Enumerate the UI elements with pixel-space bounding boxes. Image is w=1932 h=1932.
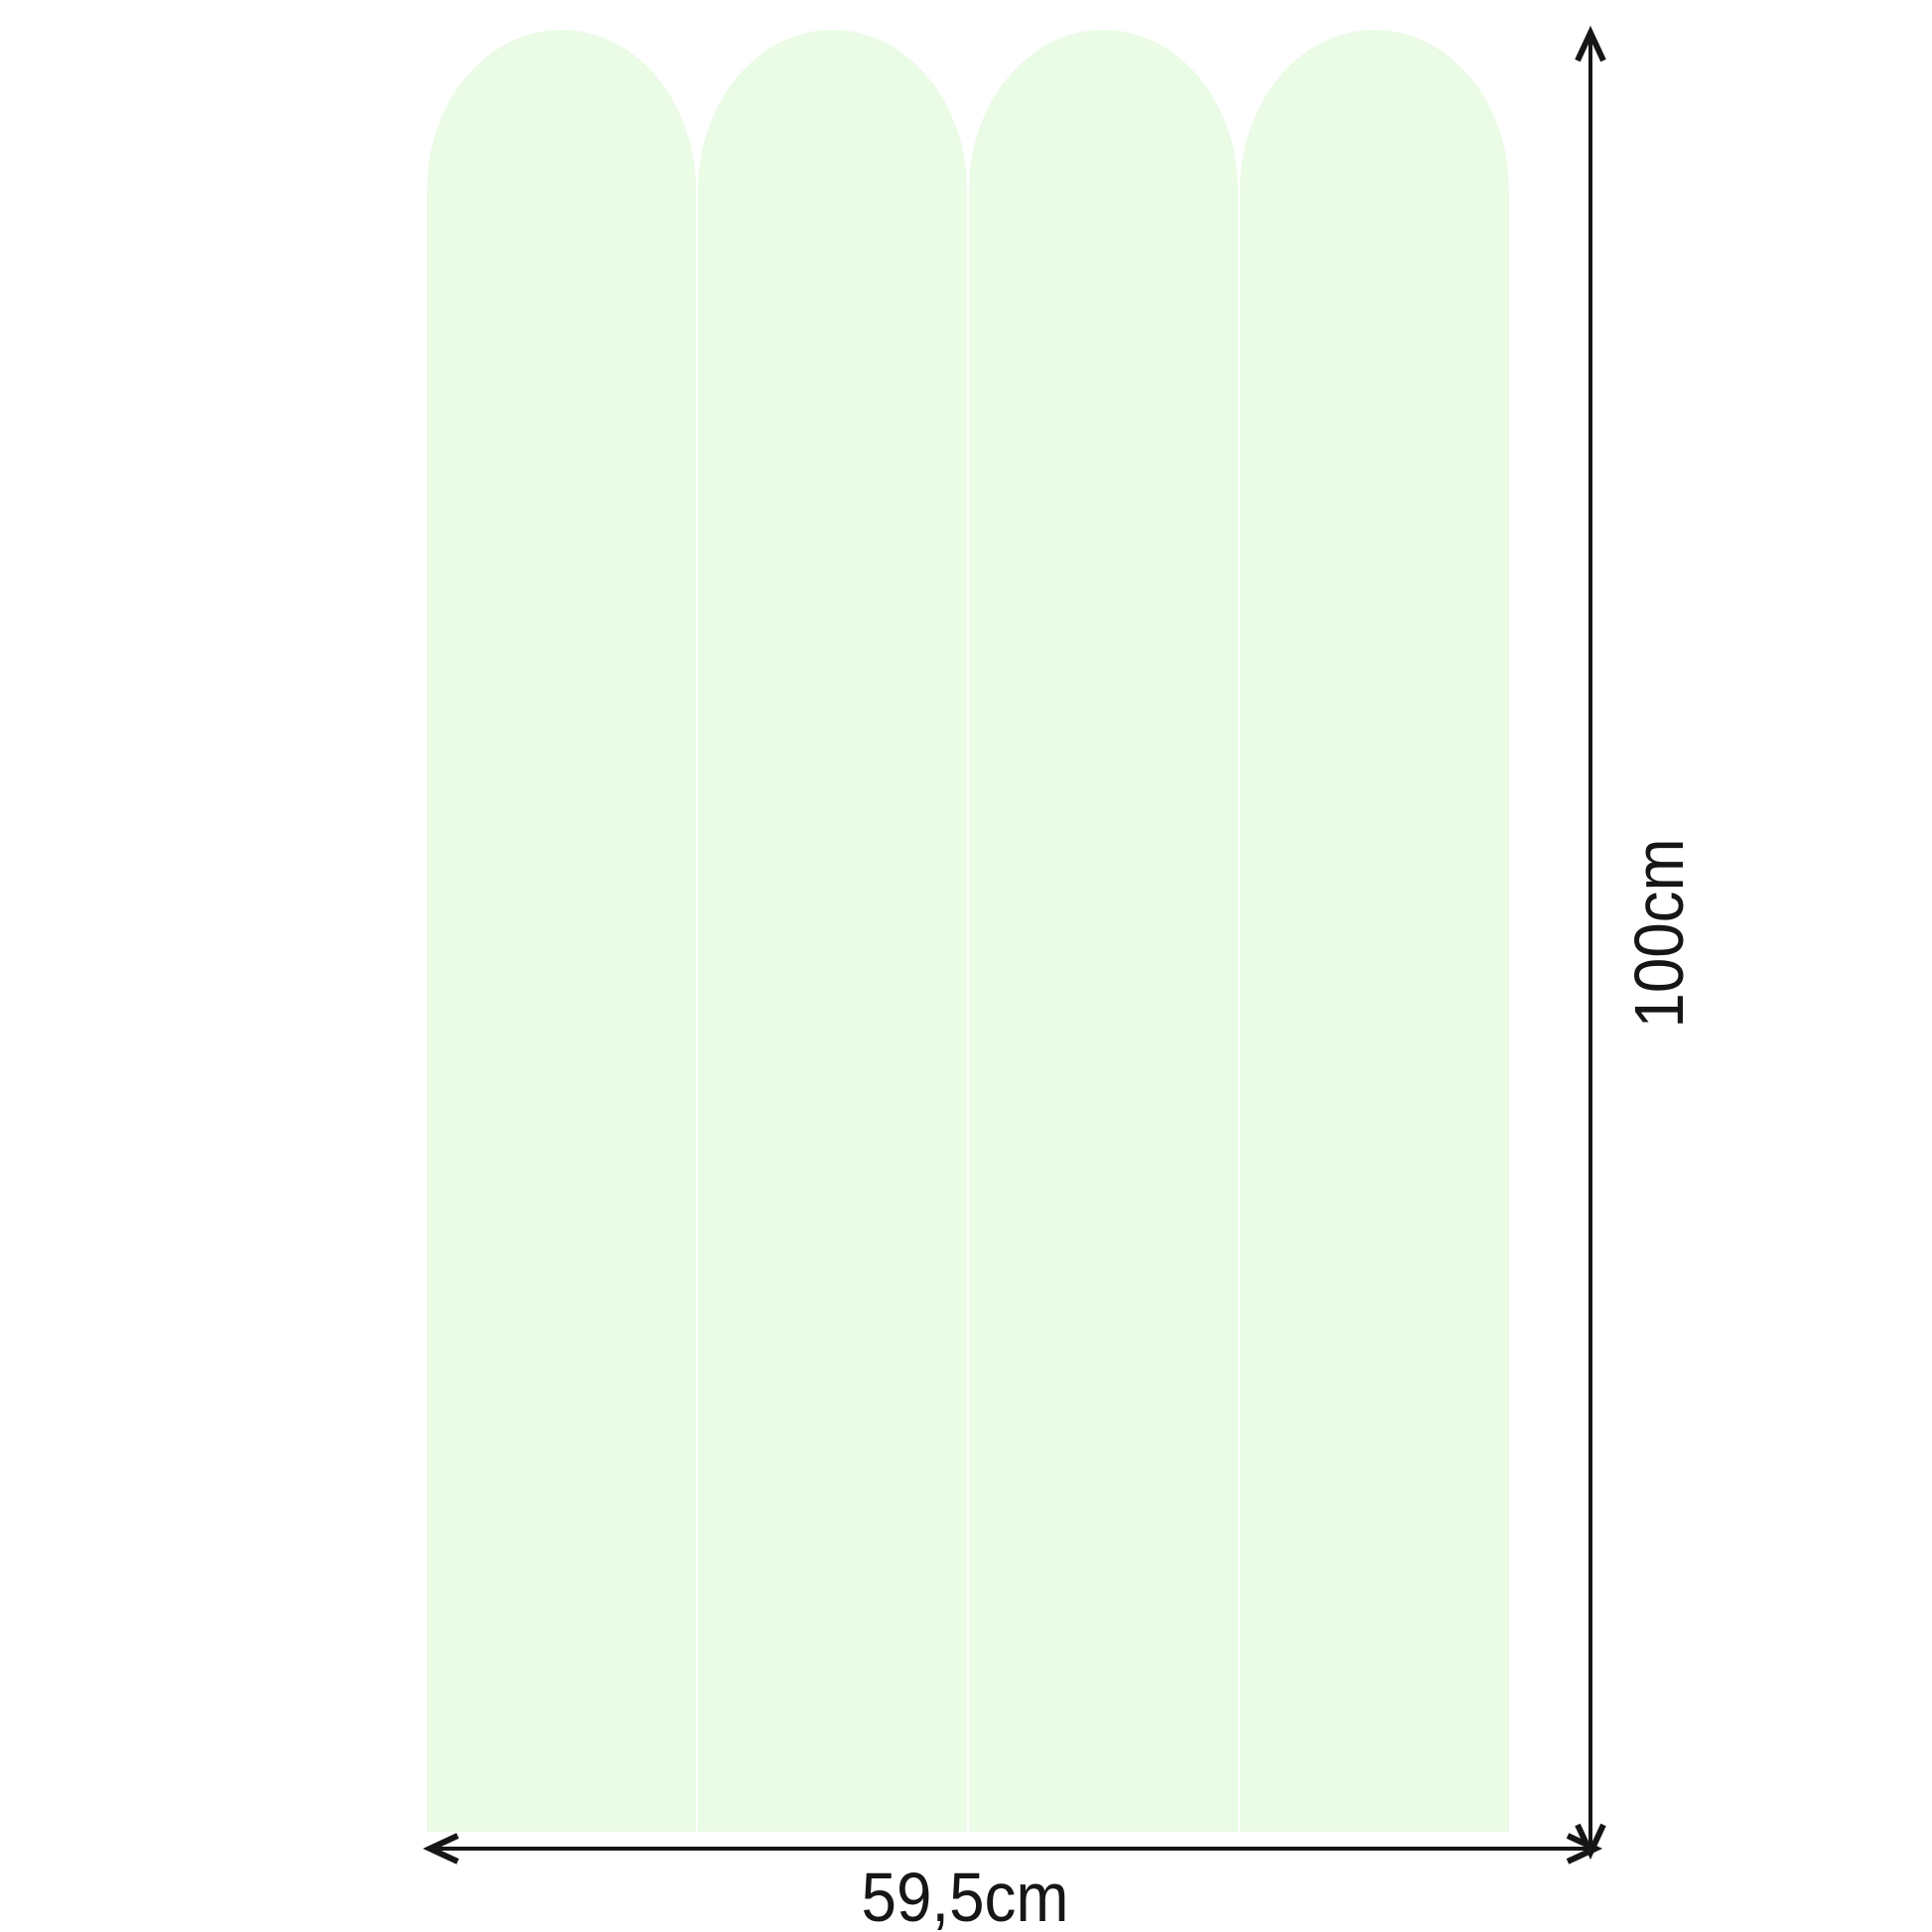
height-arrow	[1578, 33, 1603, 1853]
height-dimension-label: 100cm	[1624, 838, 1694, 1028]
dimension-diagram: 100cm 59,5cm	[0, 0, 1932, 1932]
width-dimension-label: 59,5cm	[862, 1863, 1069, 1932]
